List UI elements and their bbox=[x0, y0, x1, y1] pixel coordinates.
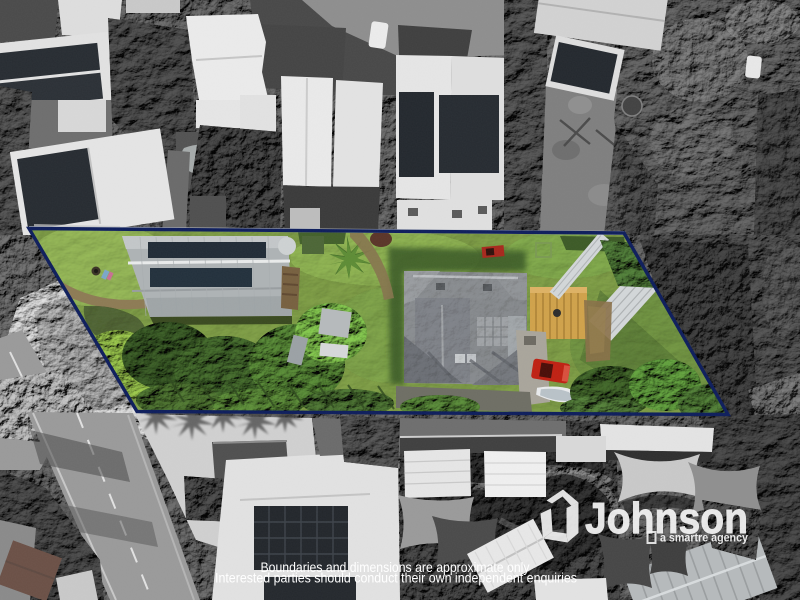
svg-text:a smartre agency: a smartre agency bbox=[660, 531, 748, 545]
svg-text:Interested parties should cond: Interested parties should conduct their … bbox=[215, 571, 577, 586]
